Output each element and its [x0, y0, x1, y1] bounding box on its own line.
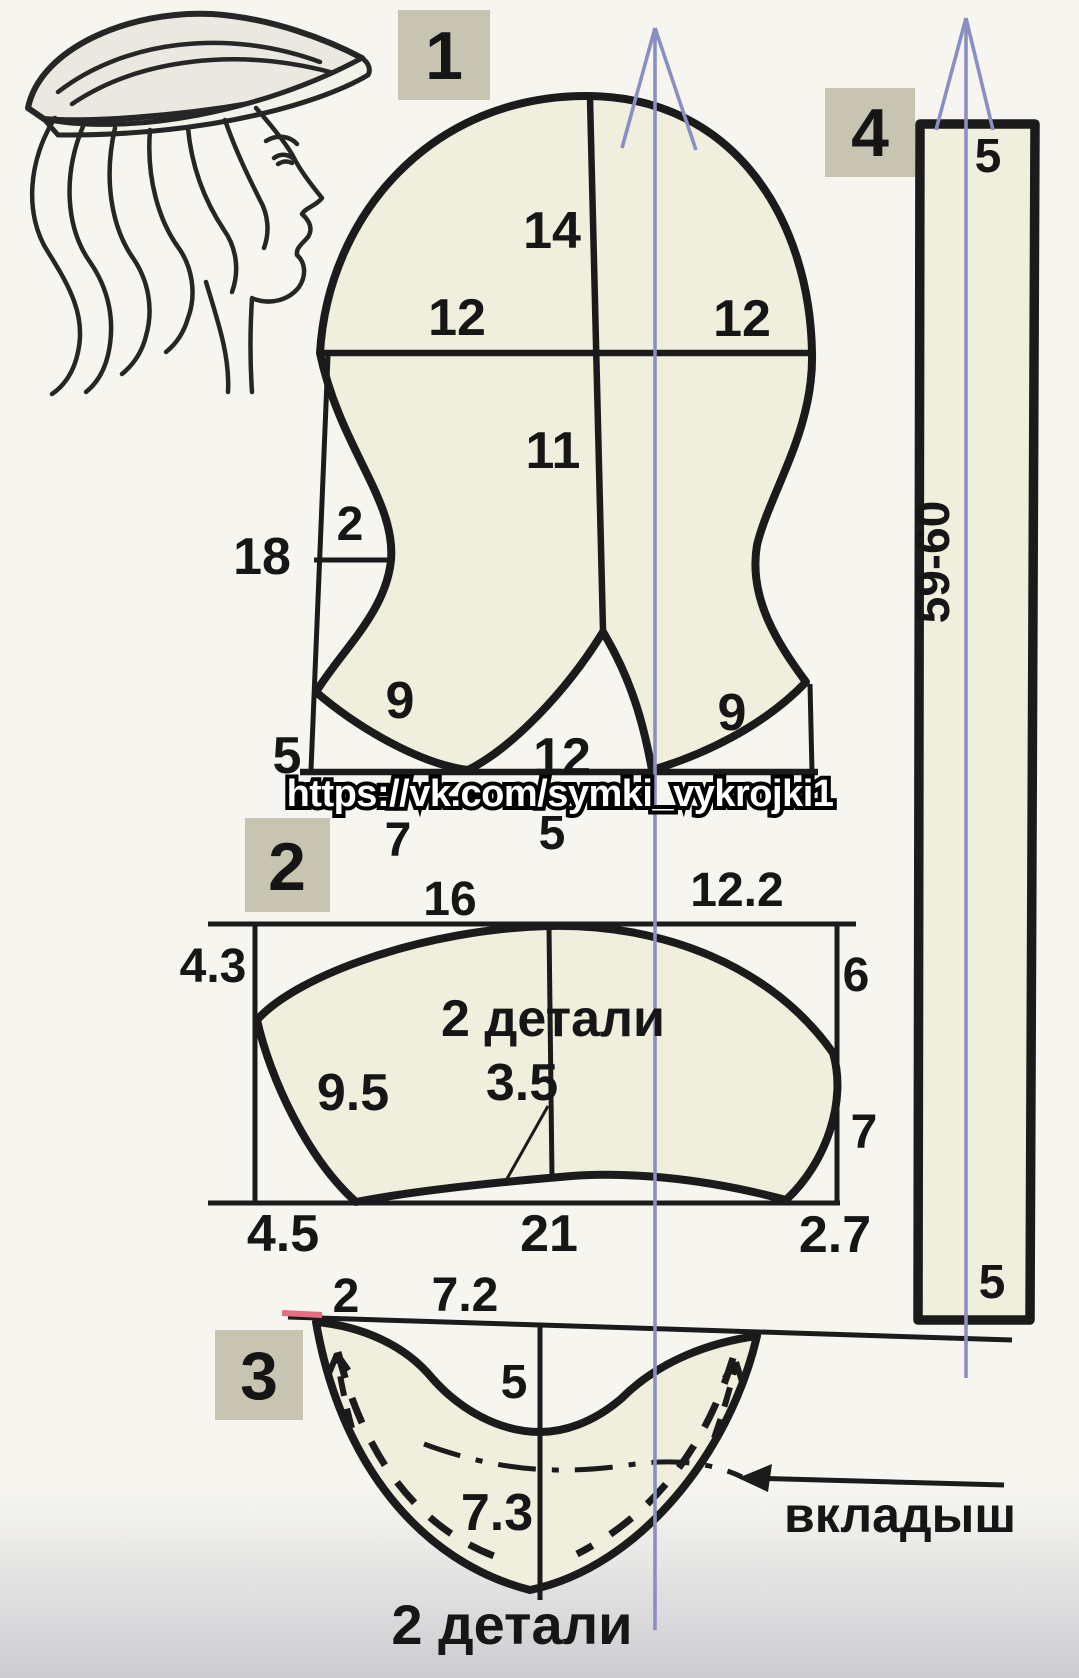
measure-4-5: 4.5: [247, 1205, 319, 1263]
piece2-label: 2: [268, 829, 306, 905]
measure-2-visor: 2: [333, 1270, 360, 1323]
sewing-pattern-diagram: 1 4 2 3 14 12 12 11 2 18 9 9 5 12 7 5 16…: [0, 0, 1079, 1678]
piece2-note: 2 детали: [441, 990, 665, 1048]
watermark-text: https://vk.com/symki_vykrojki1: [287, 773, 834, 815]
piece4-strip-pattern: [918, 124, 1035, 1320]
pattern-photo: 1 4 2 3 14 12 12 11 2 18 9 9 5 12 7 5 16…: [0, 0, 1079, 1678]
measure-9-left: 9: [386, 672, 415, 730]
piece3-note: 2 детали: [391, 1593, 632, 1656]
measure-59-60: 59-60: [907, 501, 960, 624]
measure-2: 2: [337, 498, 364, 551]
measure-11: 11: [526, 422, 581, 480]
measure-12-2: 12.2: [690, 864, 783, 917]
piece4-label: 4: [851, 95, 889, 171]
measure-16: 16: [423, 873, 476, 926]
piece4-outline: [918, 124, 1035, 1320]
piece3-label: 3: [240, 1338, 278, 1414]
measure-6: 6: [843, 949, 870, 1002]
measure-21: 21: [520, 1205, 578, 1263]
measure-5-strip-bottom: 5: [979, 1256, 1006, 1309]
measure-5-strip-top: 5: [975, 130, 1002, 183]
measure-12-left: 12: [428, 289, 486, 347]
measure-14: 14: [523, 202, 581, 260]
measure-3-5: 3.5: [486, 1054, 558, 1112]
measure-7-2: 7.2: [432, 1269, 499, 1322]
measure-2-7: 2.7: [799, 1206, 871, 1264]
measure-9-5: 9.5: [317, 1064, 389, 1122]
measure-5-visor: 5: [501, 1356, 528, 1409]
measure-4-3: 4.3: [180, 940, 247, 993]
callout-label: вкладыш: [784, 1487, 1016, 1543]
measure-18: 18: [233, 528, 291, 586]
measure-9-right: 9: [718, 684, 747, 742]
piece3-pink-mark: [282, 1313, 322, 1315]
measure-12-right: 12: [713, 290, 771, 348]
piece1-label: 1: [425, 18, 463, 94]
measure-7-right: 7: [851, 1106, 878, 1159]
measure-7-below: 7: [385, 814, 412, 867]
measure-7-3: 7.3: [461, 1484, 533, 1542]
